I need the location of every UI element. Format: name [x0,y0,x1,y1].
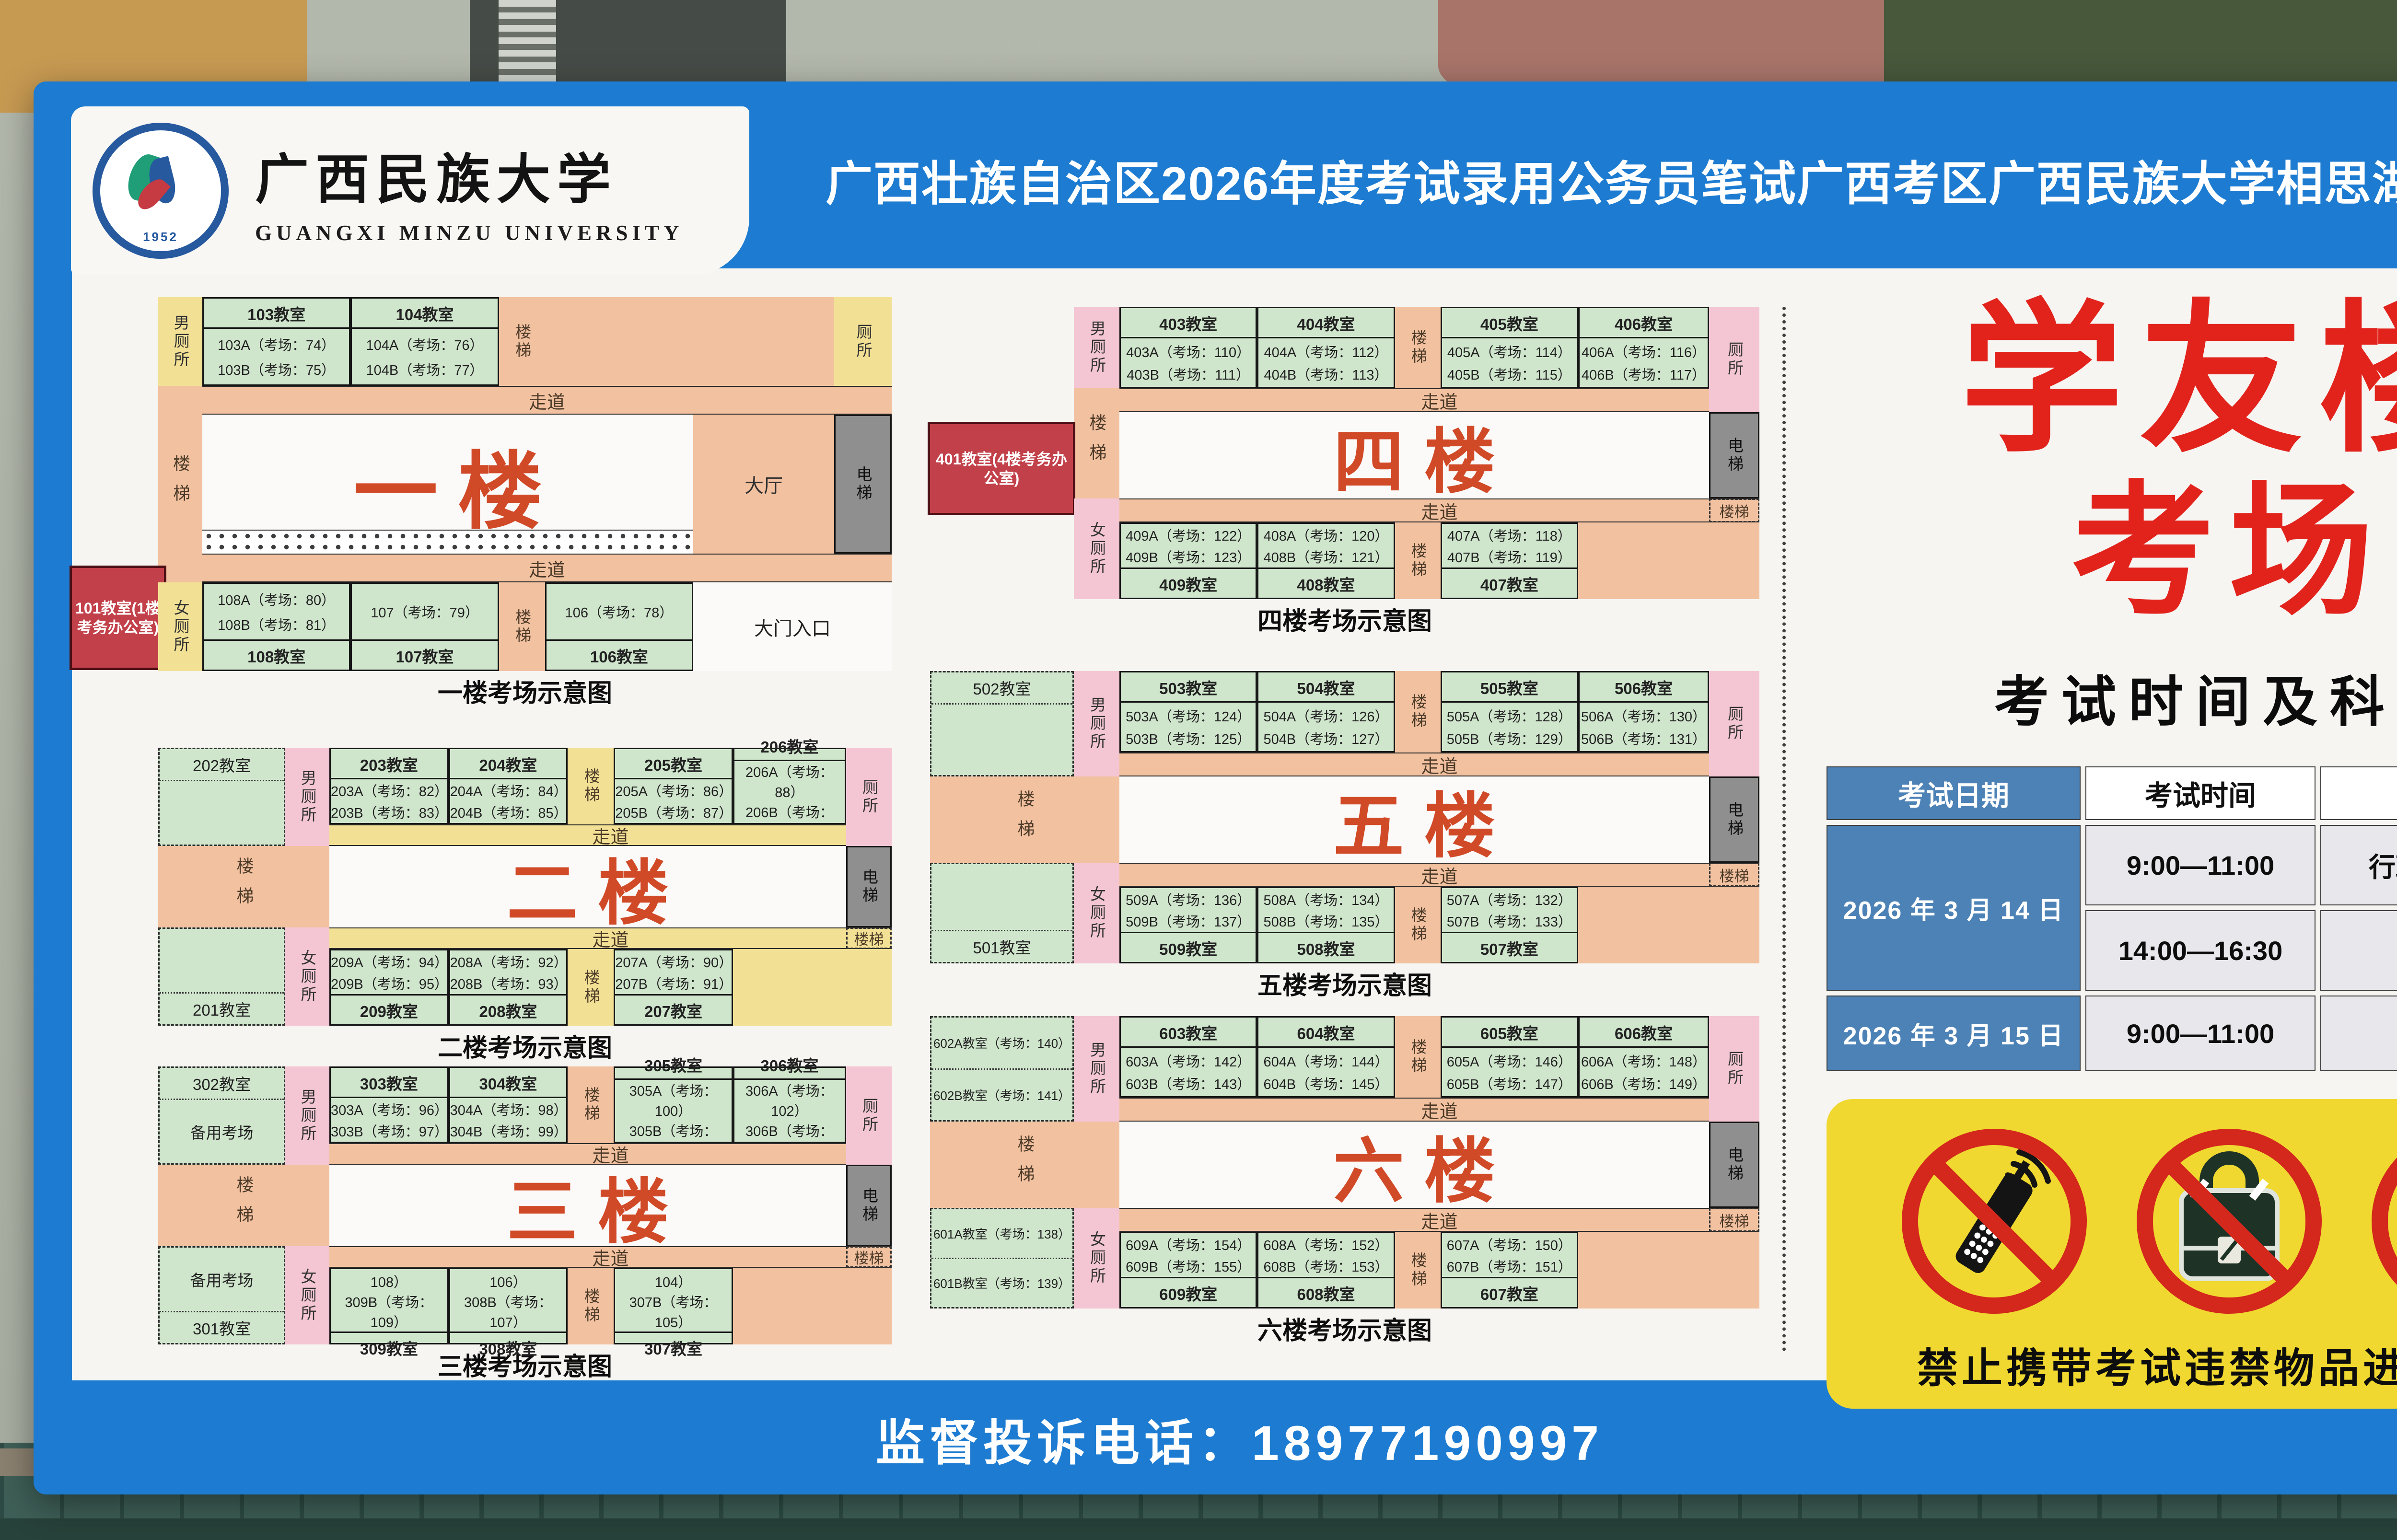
floor-plan-3: 302教室备用考场男厕所303教室303A（考场：96）303B（考场：97）3… [158,1066,892,1381]
room-title: 409教室 [1121,567,1256,598]
corridor-bottom: 走道 [1119,863,1759,887]
room-line: 104B（考场：77） [352,359,497,379]
seal-year: 1952 [100,230,221,244]
room-cell: 407A（考场：118）407B（考场：119）407教室 [1441,522,1578,599]
room-line: 208A（考场：92） [450,951,567,972]
room-cell: 508A（考场：134）508B（考场：135）508教室 [1257,887,1395,963]
room-title: 309教室 [331,1332,447,1362]
room-line: 207A（考场：90） [615,951,732,972]
room-cell: 206教室206A（考场：88）206B（考场：89） [733,748,846,824]
room-cell: 108A（考场：80）108B（考场：81）108教室 [202,582,350,671]
right-panel: 学友楼 考场 考试时间及科目 考试日期 考试时间 考试科目 2026 年 3 月… [1827,292,2397,1409]
room-line: 607A（考场：150） [1442,1234,1577,1254]
room-line: 204A（考场：84） [450,780,567,800]
floor-caption: 一楼考场示意图 [158,674,892,707]
corridor-bottom: 走道 [202,554,892,582]
side-room-title: 302教室 [160,1068,284,1100]
room-line: 103B（考场：75） [204,359,349,379]
subject-cell: 行政职业能力测验 [2320,825,2397,905]
room-line: 605B（考场：147） [1442,1073,1577,1093]
hall-area: 一楼 [202,415,693,554]
room-cell: 309A（考场：108）309B（考场：109）309教室 [329,1268,449,1344]
room-title: 107教室 [352,639,497,670]
room-cell: 103教室103A（考场：74）103B（考场：75） [202,297,350,386]
room-lines: 407A（考场：118）407B（考场：119） [1442,524,1577,567]
toilet-cell: 厕所 [1709,1016,1759,1122]
room-lines: 107（考场：79） [352,584,497,639]
room-lines: 403A（考场：110）403B（考场：111） [1121,338,1256,387]
room-line: 206A（考场：88） [734,761,845,801]
hall-label: 六楼 [1313,1113,1515,1216]
room-title: 106教室 [547,639,692,670]
room-line: 604A（考场：144） [1258,1051,1393,1071]
elevator-cell: 电梯 [834,415,892,554]
side-room-cell: 501教室 [930,863,1074,963]
hall-label: 一楼 [333,423,562,545]
hall-area: 三楼 [329,1165,846,1246]
corridor-bottom: 走道 [1119,1208,1759,1232]
room-line: 507A（考场：132） [1442,889,1577,909]
room-lines: 404A（考场：112）404B（考场：113） [1258,338,1393,387]
room-line: 307B（考场：105） [615,1291,732,1332]
room-line: 607B（考场：151） [1442,1256,1577,1276]
room-line: 406B（考场：117） [1580,364,1708,384]
room-line: 408A（考场：120） [1258,525,1393,545]
room-line: 603A（考场：142） [1121,1051,1256,1071]
toilet-cell-female: 女厕所 [1074,498,1119,599]
room-cell: 605教室605A（考场：146）605B（考场：147） [1441,1016,1578,1098]
room-title: 405教室 [1442,308,1577,338]
floor-plan-4: 男厕所403教室403A（考场：110）403B（考场：111）404教室404… [930,307,1759,636]
hall-label: 二楼 [487,835,689,938]
room-lines: 503A（考场：124）503B（考场：125） [1121,703,1256,751]
room-cell: 107（考场：79）107教室 [350,582,499,671]
room-line: 405A（考场：114） [1442,341,1577,361]
room-lines: 608A（考场：152）608B（考场：153） [1258,1233,1393,1277]
room-line: 404B（考场：113） [1258,364,1393,384]
room-title: 504教室 [1258,672,1393,703]
side-room-cell: 202教室 [158,748,285,846]
university-name-cn: 广西民族大学 [255,136,684,214]
stair-cell-right: 楼梯 [846,1246,892,1268]
stair-cell: 楼梯 [1395,671,1441,753]
room-line: 409B（考场：123） [1121,546,1256,567]
toilet-cell-female: 女厕所 [158,582,202,671]
toilet-cell: 厕所 [846,1066,892,1165]
blank-cell [545,297,834,386]
prohibited-items-row [1841,1125,2397,1317]
schedule-table: 考试日期 考试时间 考试科目 2026 年 3 月 14 日 9:00—11:0… [1827,766,2397,1071]
room-title: 403教室 [1121,308,1256,338]
room-cell: 403教室403A（考场：110）403B（考场：111） [1119,307,1257,388]
room-line: 506B（考场：131） [1580,728,1708,748]
side-room-line: 602A教室（考场：140） [931,1018,1072,1070]
room-line: 403B（考场：111） [1121,364,1256,384]
toilet-cell-female: 女厕所 [285,1246,329,1344]
room-line: 509A（考场：136） [1121,889,1256,909]
room-cell: 507A（考场：132）507B（考场：133）507教室 [1441,887,1578,963]
stair-cell: 楼梯 [568,748,614,824]
room-line: 609A（考场：154） [1121,1234,1256,1254]
stair-cell: 楼梯 [1395,307,1441,388]
room-line: 306A（考场：102） [734,1080,845,1120]
room-line: 303A（考场：96） [331,1099,447,1119]
blank-cell [1578,1232,1759,1308]
room-title: 603教室 [1121,1018,1256,1048]
room-line: 203A（考场：82） [331,780,447,800]
room-title: 308教室 [450,1332,567,1362]
room-cell: 608A（考场：152）608B（考场：153）608教室 [1257,1232,1395,1308]
room-title: 404教室 [1258,308,1393,338]
room-title: 305教室 [615,1050,732,1080]
time-cell: 14:00—16:30 [2085,910,2316,991]
room-cell: 504教室504A（考场：126）504B（考场：127） [1257,671,1395,753]
room-cell: 308A（考场：106）308B（考场：107）308教室 [449,1268,568,1344]
room-line: 305A（考场：100） [615,1080,732,1120]
elevator-cell: 电梯 [1709,1122,1759,1208]
entrance-steps [202,530,693,554]
room-title: 304教室 [450,1068,567,1098]
elevator-cell: 电梯 [1709,776,1759,863]
side-room-line: 601A教室（考场：138） [931,1209,1072,1259]
stair-cell-right: 楼梯 [1709,1208,1759,1232]
room-title: 503教室 [1121,672,1256,703]
room-lines: 508A（考场：134）508B（考场：135） [1258,888,1393,932]
room-lines: 504A（考场：126）504B（考场：127） [1258,703,1393,751]
room-cell: 607A（考场：150）607B（考场：151）607教室 [1441,1232,1578,1308]
toilet-cell: 厕所 [1709,671,1759,776]
room-line: 507B（考场：133） [1442,911,1577,931]
stair-cell-right: 楼梯 [1709,863,1759,887]
room-title: 209教室 [331,994,447,1024]
toilet-cell-male: 男厕所 [158,297,202,386]
room-lines: 207A（考场：90）207B（考场：91） [615,950,732,994]
column-separator [1782,307,1786,1352]
room-cell: 304教室304A（考场：98）304B（考场：99） [449,1066,568,1143]
time-cell: 9:00—11:00 [2085,825,2316,905]
side-room-body: 备用考场 [160,1100,284,1163]
floor-grid: 502教室男厕所503教室503A（考场：124）503B（考场：125）504… [930,671,1759,963]
entrance-cell: 大门入口 [693,582,892,671]
room-line: 108B（考场：81） [204,614,349,634]
side-room-body [931,705,1072,775]
room-cell: 606教室606A（考场：148）606B（考场：149） [1578,1016,1709,1098]
toilet-cell-female: 女厕所 [1074,1208,1119,1308]
room-line: 603B（考场：143） [1121,1073,1256,1093]
side-room-cell: 601A教室（考场：138）601B教室（考场：139） [930,1208,1074,1308]
stair-cell: 楼梯 [568,1066,614,1143]
university-seal: 1952 [93,123,229,259]
room-cell: 203教室203A（考场：82）203B（考场：83） [329,748,449,824]
room-title: 609教室 [1121,1277,1256,1307]
room-cell: 509A（考场：136）509B（考场：137）509教室 [1119,887,1257,963]
subject-cell: 专业科目 [2320,996,2397,1071]
side-room-title: 201教室 [160,992,284,1024]
hall-area: 六楼 [1119,1122,1709,1208]
hall-area: 二楼 [329,846,846,927]
room-line: 104A（考场：76） [352,334,497,354]
room-line: 406A（考场：116） [1580,341,1708,361]
room-line: 106（考场：78） [547,602,692,622]
room-line: 209A（考场：94） [331,951,447,972]
room-title: 608教室 [1258,1277,1393,1307]
room-lines: 203A（考场：82）203B（考场：83） [331,779,447,823]
toilet-cell: 厕所 [834,297,892,386]
room-title: 303教室 [331,1068,447,1098]
toilet-cell: 厕所 [846,748,892,846]
stair-cell: 楼梯 [499,582,545,671]
room-line: 503B（考场：125） [1121,728,1256,748]
room-line: 204B（考场：85） [450,802,567,822]
exam-office-box: 401教室(4楼考务办公室) [928,422,1075,515]
toilet-cell: 厕所 [1709,307,1759,412]
floor-plan-2: 202教室男厕所203教室203A（考场：82）203B（考场：83）204教室… [158,748,892,1062]
room-cell: 104教室104A（考场：76）104B（考场：77） [350,297,499,386]
university-logo-panel: 1952 广西民族大学 GUANGXI MINZU UNIVERSITY [71,106,749,275]
room-lines: 606A（考场：148）606B（考场：149） [1580,1048,1708,1096]
room-lines: 509A（考场：136）509B（考场：137） [1121,888,1256,932]
university-name-block: 广西民族大学 GUANGXI MINZU UNIVERSITY [255,136,684,245]
room-lines: 209A（考场：94）209B（考场：95） [331,950,447,994]
room-line: 309B（考场：109） [331,1291,447,1332]
elevator-cell: 电梯 [846,1165,892,1246]
room-line: 208B（考场：93） [450,973,567,993]
subject-cell: 申论 [2320,910,2397,991]
side-room-cell: 201教室 [158,927,285,1026]
table-header-subject: 考试科目 [2320,766,2397,820]
side-room-title: 502教室 [931,672,1072,705]
room-line: 308B（考场：107） [450,1291,567,1332]
room-line: 504B（考场：127） [1258,728,1393,748]
toilet-cell-female: 女厕所 [285,927,329,1026]
side-room-line: 602B教室（考场：141） [931,1070,1072,1121]
floor-caption: 四楼考场示意图 [930,602,1759,636]
toilet-cell-male: 男厕所 [1074,307,1119,388]
hall-area: 五楼 [1119,776,1709,863]
room-cell: 106（考场：78）106教室 [545,582,693,671]
room-line: 508A（考场：134） [1258,889,1393,909]
room-lines: 604A（考场：144）604B（考场：145） [1258,1048,1393,1096]
room-cell: 306教室306A（考场：102）306B（考场：103） [733,1066,846,1143]
room-lines: 607A（考场：150）607B（考场：151） [1442,1233,1577,1277]
room-cell: 408A（考场：120）408B（考场：121）408教室 [1257,522,1395,599]
room-lines: 106（考场：78） [547,584,692,639]
stair-cell-left: 楼梯 [158,386,202,582]
floor-grid: 202教室男厕所203教室203A（考场：82）203B（考场：83）204教室… [158,748,892,1026]
schedule-title: 考试时间及科目 [1827,658,2397,737]
room-line: 108A（考场：80） [204,589,349,609]
room-title: 508教室 [1258,932,1393,962]
elevator-cell: 电梯 [1709,412,1759,498]
stair-cell: 楼梯 [1395,522,1441,599]
room-line: 509B（考场：137） [1121,911,1256,931]
side-room-line: 601B教室（考场：139） [931,1259,1072,1308]
room-cell: 307A（考场：104）307B（考场：105）307教室 [614,1268,733,1344]
floor-plan-1: 男厕所103教室103A（考场：74）103B（考场：75）104教室104A（… [158,297,892,707]
room-line: 209B（考场：95） [331,973,447,993]
side-room-cell: 502教室 [930,671,1074,776]
room-line: 604B（考场：145） [1258,1073,1393,1093]
room-title: 507教室 [1442,932,1577,962]
stair-cell: 楼梯 [1395,1232,1441,1308]
room-line: 403A（考场：110） [1121,341,1256,361]
side-room-title: 501教室 [931,930,1072,962]
room-lines: 108A（考场：80）108B（考场：81） [204,584,349,639]
room-title: 606教室 [1580,1018,1708,1048]
room-line: 608A（考场：152） [1258,1234,1393,1254]
room-lines: 104A（考场：76）104B（考场：77） [352,329,497,384]
room-cell: 305教室305A（考场：100）305B（考场：101） [614,1066,733,1143]
side-room-body: 备用考场 [160,1248,284,1311]
hotline: 监督投诉电话：18977190997 [0,1404,2397,1474]
room-title: 604教室 [1258,1018,1393,1048]
room-line: 409A（考场：122） [1121,525,1256,545]
date-cell: 2026 年 3 月 15 日 [1827,996,2081,1071]
warning-sign: 禁止携带考试违禁物品进入考场 [1827,1099,2397,1409]
room-cell: 603教室603A（考场：142）603B（考场：143） [1119,1016,1257,1098]
toilet-cell-male: 男厕所 [1074,1016,1119,1122]
room-title: 407教室 [1442,567,1577,598]
room-lines: 304A（考场：98）304B（考场：99） [450,1098,567,1142]
no-bag-icon [2133,1125,2325,1317]
room-title: 203教室 [331,749,447,779]
room-title: 605教室 [1442,1018,1577,1048]
room-line: 606A（考场：148） [1580,1051,1708,1071]
room-cell: 405教室405A（考场：114）405B（考场：115） [1441,307,1578,388]
room-title: 103教室 [204,299,349,329]
corridor-bottom: 走道 [1119,498,1759,522]
no-phone-icon [1898,1125,2090,1317]
room-line: 407B（考场：119） [1442,546,1577,567]
room-line: 205B（考场：87） [615,802,732,822]
blank-cell [733,1268,892,1344]
room-line: 107（考场：79） [352,602,497,622]
room-line: 505A（考场：128） [1442,706,1577,726]
room-lines: 605A（考场：146）605B（考场：147） [1442,1048,1577,1096]
warning-text: 禁止携带考试违禁物品进入考场 [1841,1335,2397,1394]
room-line: 407A（考场：118） [1442,525,1577,545]
room-cell: 205教室205A（考场：86）205B（考场：87） [614,748,733,824]
room-line: 304B（考场：99） [450,1121,567,1141]
floor-plan-5: 502教室男厕所503教室503A（考场：124）503B（考场：125）504… [930,671,1759,1000]
room-cell: 406教室406A（考场：116）406B（考场：117） [1578,307,1709,388]
corridor-bottom: 走道 [329,927,892,949]
room-title: 307教室 [615,1332,732,1362]
stair-cell: 楼梯 [568,1268,614,1344]
room-lines: 409A（考场：122）409B（考场：123） [1121,524,1256,567]
room-title: 408教室 [1258,567,1393,598]
room-lines: 406A（考场：116）406B（考场：117） [1580,338,1708,387]
stair-cell-left: 楼梯 [1074,388,1119,498]
no-smartwatch-icon [2368,1125,2397,1317]
room-title: 406教室 [1580,308,1708,338]
side-room-title: 202教室 [160,749,284,781]
room-cell: 604教室604A（考场：144）604B（考场：145） [1257,1016,1395,1098]
room-cell: 404教室404A（考场：112）404B（考场：113） [1257,307,1395,388]
room-line: 609B（考场：155） [1121,1256,1256,1276]
room-line: 303B（考场：97） [331,1121,447,1141]
room-title: 204教室 [450,749,567,779]
photo-of-exam-notice-board: { "header": { "university_cn": "广西民族大学",… [0,0,2397,1540]
room-title: 607教室 [1442,1277,1577,1307]
room-cell: 207A（考场：90）207B（考场：91）207教室 [614,949,733,1026]
room-cell: 505教室505A（考场：128）505B（考场：129） [1441,671,1578,753]
lobby-cell: 大厅 [693,415,834,554]
room-lines: 204A（考场：84）204B（考场：85） [450,779,567,823]
corridor-top: 走道 [202,386,892,415]
room-lines: 405A（考场：114）405B（考场：115） [1442,338,1577,387]
exam-office-box: 101教室(1楼考务办公室) [70,566,166,670]
hall-label: 四楼 [1313,404,1515,507]
stair-cell: 楼梯 [1395,1016,1441,1098]
stair-cell: 楼梯 [1395,887,1441,963]
room-line: 103A（考场：74） [204,334,349,354]
blank-cell [1578,887,1759,963]
blank-cell [1578,522,1759,599]
toilet-cell-female: 女厕所 [1074,863,1119,963]
floor-grid: 602A教室（考场：140）602B教室（考场：141）男厕所603教室603A… [930,1016,1759,1308]
stair-cell-right: 楼梯 [846,927,892,949]
time-cell: 9:00—11:00 [2085,996,2316,1071]
hall-label: 五楼 [1313,768,1515,871]
room-title: 108教室 [204,639,349,670]
room-lines: 205A（考场：86）205B（考场：87） [615,779,732,823]
toilet-cell-male: 男厕所 [1074,671,1119,776]
stair-cell-right: 楼梯 [1709,498,1759,522]
room-cell: 503教室503A（考场：124）503B（考场：125） [1119,671,1257,753]
room-title: 306教室 [734,1050,845,1080]
room-line: 503A（考场：124） [1121,706,1256,726]
background-fence-rail-lower [0,1518,2397,1540]
elevator-cell: 电梯 [846,846,892,927]
floor-caption: 五楼考场示意图 [930,966,1759,1000]
hall-label: 三楼 [487,1154,689,1257]
room-title: 506教室 [1580,672,1708,703]
room-cell: 303教室303A（考场：96）303B（考场：97） [329,1066,449,1143]
room-lines: 609A（考场：154）609B（考场：155） [1121,1233,1256,1277]
room-line: 505B（考场：129） [1442,728,1577,748]
floor-caption: 六楼考场示意图 [930,1311,1759,1345]
room-lines: 505A（考场：128）505B（考场：129） [1442,703,1577,751]
toilet-cell-male: 男厕所 [285,1066,329,1165]
room-line: 207B（考场：91） [615,973,732,993]
room-line: 508B（考场：135） [1258,911,1393,931]
room-lines: 603A（考场：142）603B（考场：143） [1121,1048,1256,1096]
side-room-title: 301教室 [160,1311,284,1343]
room-lines: 303A（考场：96）303B（考场：97） [331,1098,447,1142]
room-title: 207教室 [615,994,732,1024]
room-lines: 408A（考场：120）408B（考场：121） [1258,524,1393,567]
table-header-date: 考试日期 [1827,766,2081,820]
room-line: 605A（考场：146） [1442,1051,1577,1071]
room-lines: 208A（考场：92）208B（考场：93） [450,950,567,994]
hall-area: 四楼 [1119,412,1709,498]
room-lines: 506A（考场：130）506B（考场：131） [1580,703,1708,751]
room-cell: 209A（考场：94）209B（考场：95）209教室 [329,949,449,1026]
floor-grid: 302教室备用考场男厕所303教室303A（考场：96）303B（考场：97）3… [158,1066,892,1344]
room-line: 506A（考场：130） [1580,706,1708,726]
room-title: 208教室 [450,994,567,1024]
side-room-body [160,929,284,992]
room-cell: 506教室506A（考场：130）506B（考场：131） [1578,671,1709,753]
room-line: 408B（考场：121） [1258,546,1393,567]
room-line: 404A（考场：112） [1258,341,1393,361]
room-line: 608B（考场：153） [1258,1256,1393,1276]
side-room-cell: 602A教室（考场：140）602B教室（考场：141） [930,1016,1074,1122]
stair-cell: 楼梯 [568,949,614,1026]
room-line: 205A（考场：86） [615,780,732,800]
room-cell: 208A（考场：92）208B（考场：93）208教室 [449,949,568,1026]
